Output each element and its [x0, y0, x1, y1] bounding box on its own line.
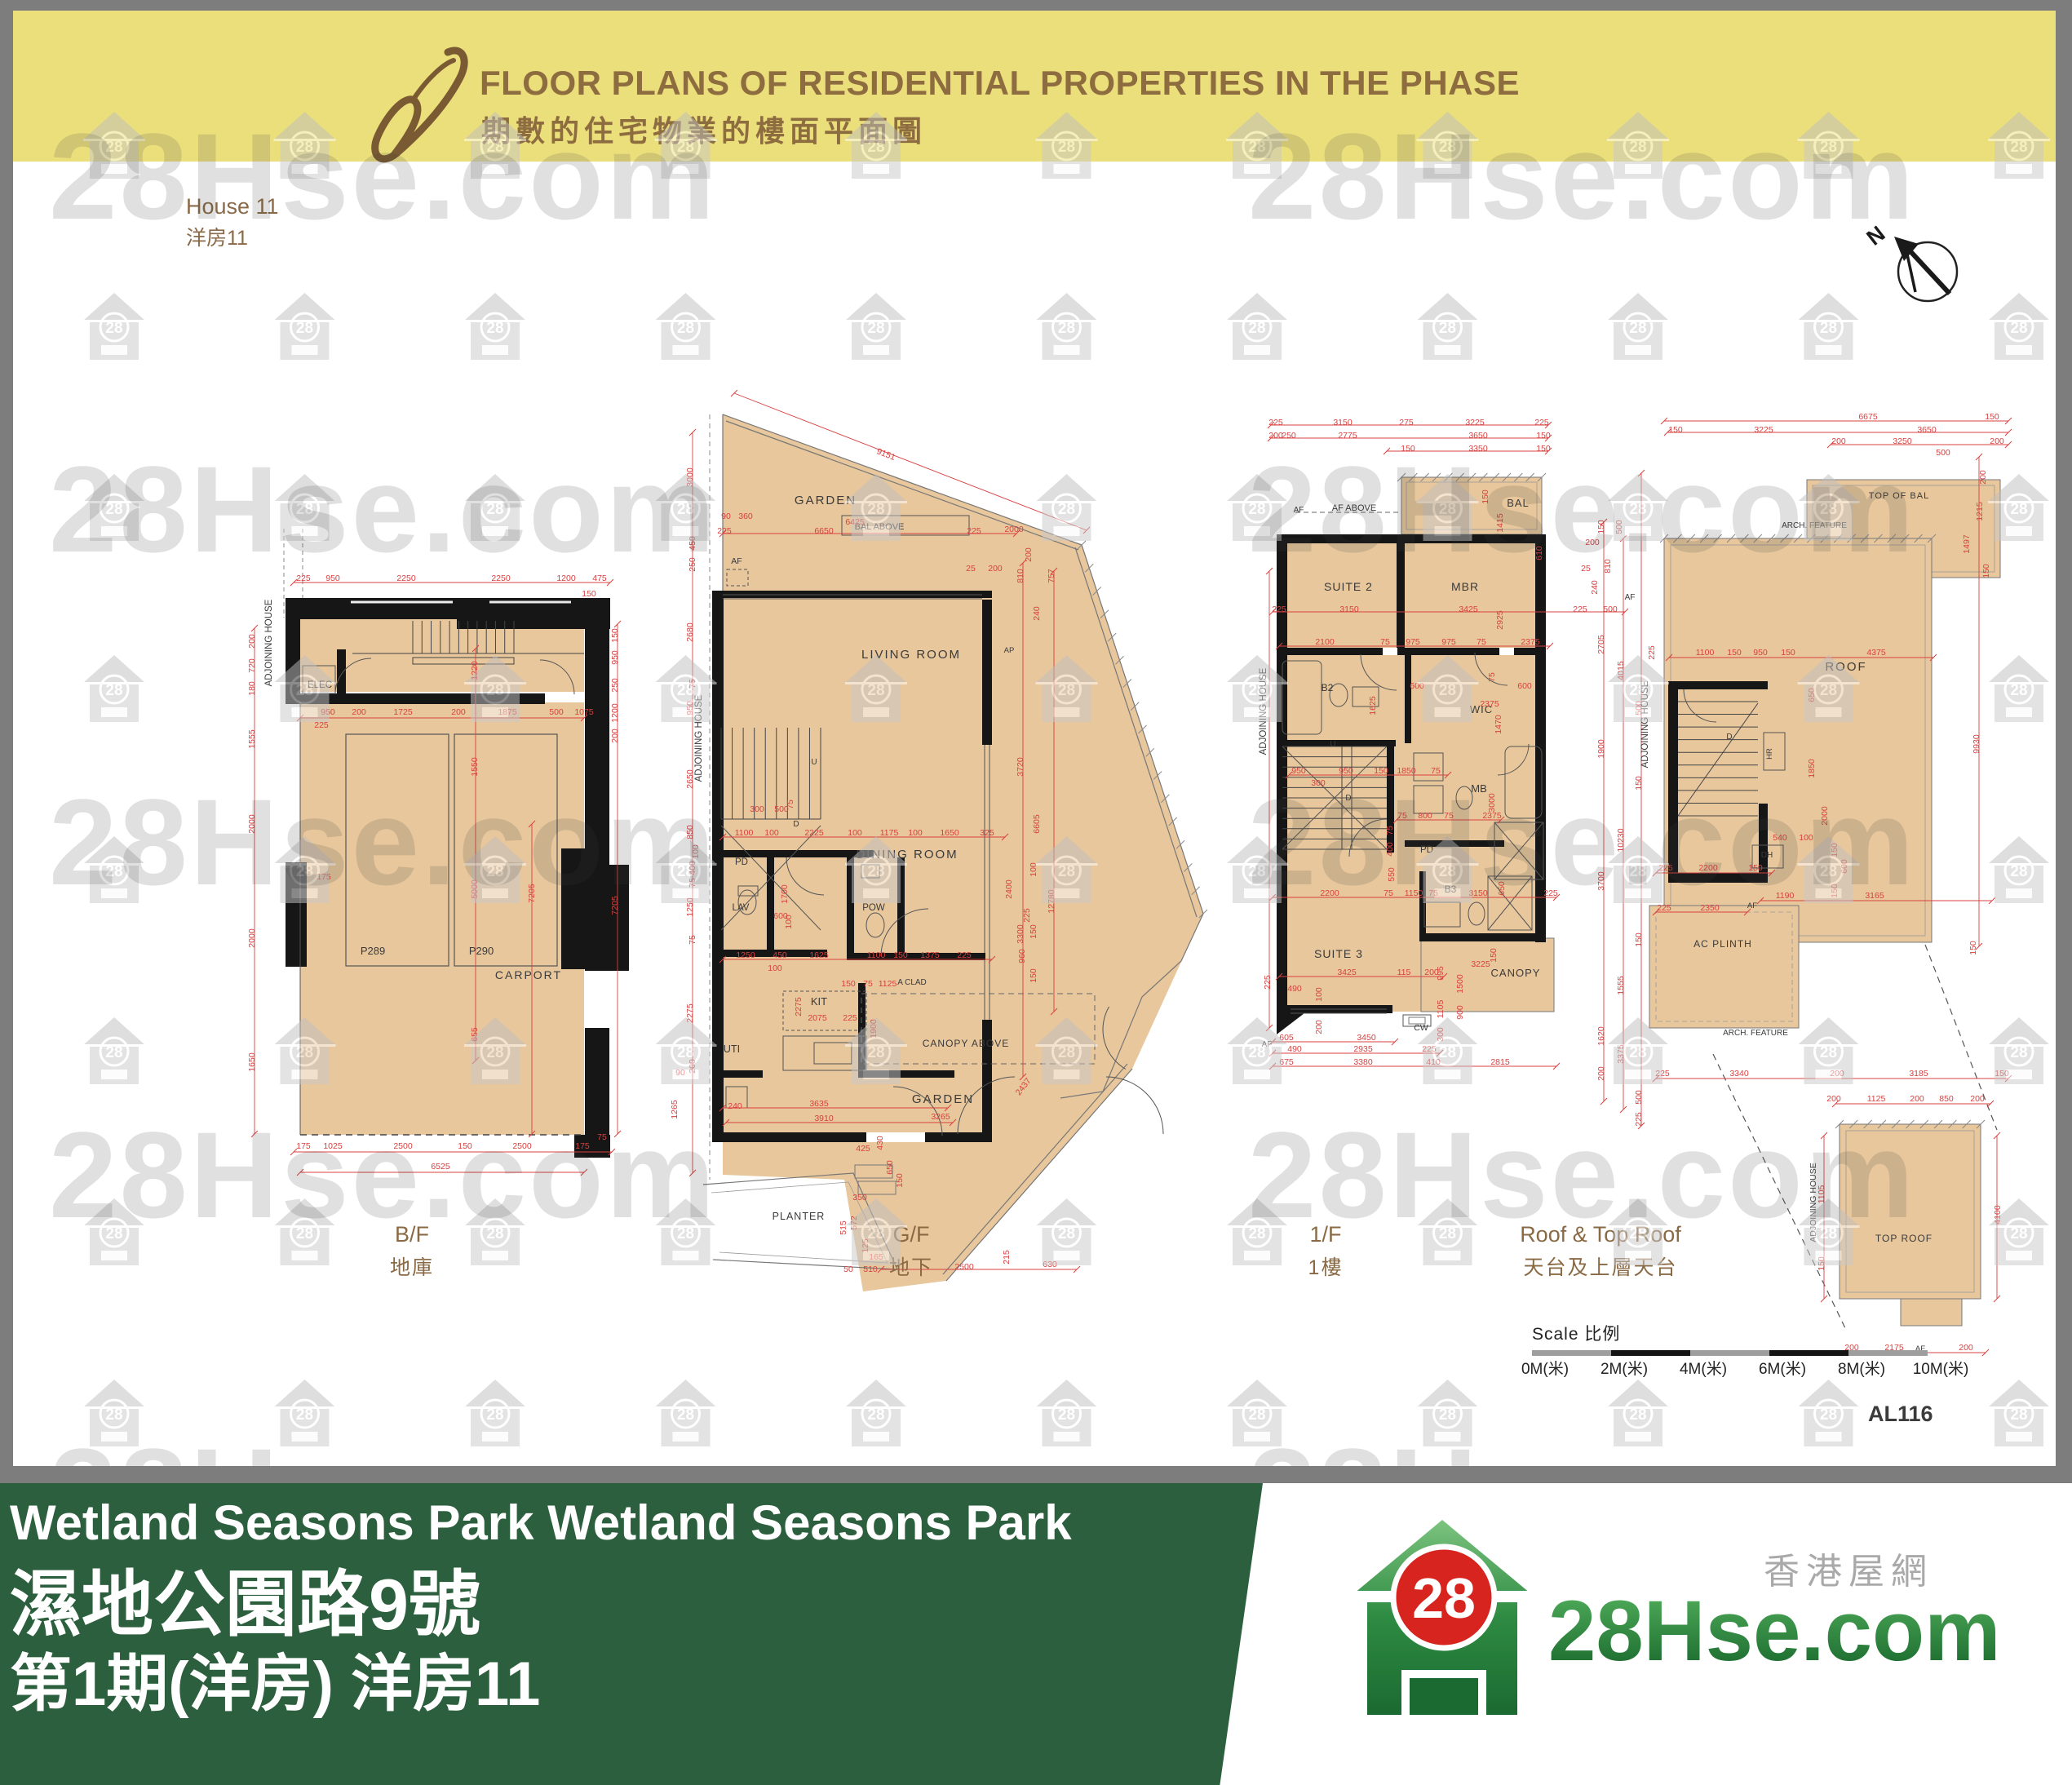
- svg-text:200: 200: [1990, 436, 2004, 446]
- svg-text:75: 75: [1380, 637, 1390, 647]
- svg-text:ARCH. FEATURE: ARCH. FEATURE: [1723, 1029, 1788, 1038]
- svg-text:6650: 6650: [814, 526, 834, 536]
- svg-text:AF: AF: [1625, 593, 1636, 602]
- svg-text:SUITE 2: SUITE 2: [1324, 580, 1373, 593]
- svg-text:1620: 1620: [1596, 1026, 1606, 1046]
- svg-text:225: 225: [843, 1013, 857, 1023]
- svg-text:4100: 4100: [1993, 1205, 2003, 1225]
- svg-text:AF: AF: [1262, 1040, 1273, 1049]
- svg-text:225: 225: [1658, 863, 1673, 873]
- svg-text:200: 200: [1910, 1094, 1924, 1104]
- svg-text:3425: 3425: [1459, 605, 1478, 614]
- svg-text:675: 675: [1279, 1057, 1294, 1067]
- svg-text:1650: 1650: [940, 828, 959, 838]
- svg-text:CANOPY ABOVE: CANOPY ABOVE: [923, 1038, 1009, 1049]
- svg-text:150: 150: [1634, 932, 1644, 947]
- svg-text:490: 490: [1287, 984, 1302, 994]
- svg-text:12780: 12780: [1047, 889, 1056, 913]
- svg-text:2650: 2650: [685, 769, 695, 789]
- svg-text:1100: 1100: [1696, 648, 1715, 658]
- svg-text:2000: 2000: [1004, 525, 1024, 534]
- svg-text:75: 75: [688, 679, 697, 689]
- svg-text:1725: 1725: [393, 707, 413, 717]
- svg-text:225: 225: [1534, 418, 1549, 427]
- svg-text:150: 150: [893, 950, 908, 960]
- svg-text:3650: 3650: [1917, 425, 1937, 435]
- estate-name-en: Wetland Seasons Park Wetland Seasons Par…: [10, 1495, 1072, 1551]
- floor-label-roof: Roof & Top Roof: [1429, 1222, 1772, 1247]
- svg-text:540: 540: [1773, 833, 1787, 843]
- svg-text:10M(米): 10M(米): [1913, 1360, 1969, 1378]
- svg-text:100: 100: [908, 828, 923, 838]
- svg-text:2225: 2225: [804, 828, 824, 838]
- svg-text:200: 200: [1596, 1066, 1606, 1081]
- svg-text:B2: B2: [1322, 682, 1334, 693]
- sheet-number: AL116: [1868, 1402, 1933, 1427]
- page-border-top: [0, 0, 2072, 11]
- svg-text:3340: 3340: [1729, 1069, 1749, 1079]
- svg-text:5000: 5000: [470, 879, 480, 899]
- svg-text:100: 100: [768, 963, 782, 973]
- svg-text:650: 650: [885, 1160, 895, 1175]
- svg-text:75: 75: [1385, 826, 1395, 835]
- svg-text:100: 100: [1029, 862, 1038, 877]
- scale-bar: Scale 比例0M(米)2M(米)4M(米)6M(米)8M(米)10M(米): [1521, 1325, 1968, 1378]
- svg-text:175: 175: [575, 1141, 590, 1151]
- svg-text:1850: 1850: [1807, 759, 1817, 778]
- svg-text:AF: AF: [1747, 901, 1757, 910]
- svg-text:200: 200: [451, 707, 466, 717]
- svg-text:LAV: LAV: [733, 903, 750, 913]
- svg-text:500: 500: [1603, 605, 1618, 614]
- svg-text:200: 200: [688, 1059, 697, 1074]
- svg-text:1075: 1075: [574, 707, 594, 717]
- svg-text:450: 450: [773, 950, 787, 960]
- svg-text:D: D: [793, 820, 799, 829]
- svg-text:300: 300: [1436, 1027, 1446, 1042]
- svg-text:90: 90: [675, 1068, 685, 1078]
- page-border-right: [2056, 0, 2072, 1466]
- svg-text:1700: 1700: [780, 884, 790, 904]
- svg-text:2400: 2400: [1004, 879, 1014, 899]
- svg-text:SUITE 3: SUITE 3: [1314, 947, 1363, 960]
- svg-text:3150: 3150: [1333, 418, 1353, 427]
- floor-label-bf: B/F: [241, 1222, 583, 1247]
- svg-text:950: 950: [325, 574, 340, 583]
- svg-text:2500: 2500: [393, 1141, 413, 1151]
- svg-text:N: N: [1862, 221, 1890, 250]
- svg-text:150: 150: [1668, 425, 1683, 435]
- svg-text:AF: AF: [731, 556, 742, 566]
- svg-text:425: 425: [856, 1144, 870, 1154]
- svg-text:200: 200: [1585, 538, 1600, 547]
- svg-text:150: 150: [1995, 1069, 2009, 1079]
- brand-text: 28Hse.com: [1548, 1583, 2000, 1679]
- svg-text:200: 200: [1830, 1069, 1844, 1079]
- page: FLOOR PLANS OF RESIDENTIAL PROPERTIES IN…: [0, 0, 2072, 1785]
- svg-text:UTI: UTI: [724, 1043, 740, 1055]
- svg-text:3225: 3225: [1754, 425, 1773, 435]
- svg-text:900: 900: [1455, 1005, 1465, 1020]
- svg-text:950: 950: [1291, 766, 1306, 776]
- svg-text:75: 75: [1487, 672, 1497, 682]
- svg-text:1875: 1875: [498, 707, 517, 717]
- svg-text:1025: 1025: [323, 1141, 343, 1151]
- svg-text:2000: 2000: [1820, 806, 1830, 826]
- svg-text:150: 150: [1489, 948, 1499, 963]
- svg-text:1850: 1850: [1397, 766, 1416, 776]
- svg-text:100: 100: [1314, 987, 1324, 1002]
- svg-text:950: 950: [610, 650, 620, 665]
- svg-text:240: 240: [728, 1101, 742, 1111]
- svg-text:7205: 7205: [610, 896, 620, 915]
- svg-text:240: 240: [1032, 606, 1042, 621]
- svg-text:3720: 3720: [1016, 757, 1025, 777]
- svg-text:2775: 2775: [1338, 431, 1357, 441]
- svg-text:200: 200: [1978, 470, 1988, 485]
- svg-text:950: 950: [1339, 766, 1353, 776]
- svg-text:350: 350: [852, 1193, 867, 1203]
- svg-text:1100: 1100: [735, 828, 754, 838]
- svg-text:GARDEN: GARDEN: [912, 1092, 974, 1106]
- svg-text:1105: 1105: [1817, 1185, 1826, 1204]
- svg-text:150: 150: [1029, 968, 1038, 983]
- svg-text:225: 225: [1422, 1044, 1437, 1054]
- svg-text:300: 300: [750, 804, 764, 814]
- floor-label-gf: G/F: [740, 1222, 1082, 1247]
- plan-bf: ADJOINING HOUSEELECP289P290CARPORT225950…: [247, 529, 629, 1176]
- svg-text:1190: 1190: [1776, 891, 1795, 901]
- svg-text:9930: 9930: [1972, 734, 1981, 754]
- svg-text:950: 950: [321, 707, 335, 717]
- svg-text:ADJOINING HOUSE: ADJOINING HOUSE: [1640, 680, 1650, 768]
- logo-zh-text: 香港屋網: [1764, 1542, 1933, 1594]
- svg-text:600: 600: [1840, 859, 1849, 874]
- svg-text:150: 150: [1830, 884, 1840, 898]
- svg-text:LIVING ROOM: LIVING ROOM: [861, 648, 961, 662]
- svg-text:3350: 3350: [1468, 444, 1488, 454]
- svg-text:2375: 2375: [1521, 637, 1540, 647]
- floor-label-bf-zh: 地庫: [241, 1251, 583, 1281]
- svg-text:400: 400: [1385, 842, 1395, 857]
- svg-text:A CLAD: A CLAD: [897, 978, 927, 987]
- svg-text:CW: CW: [1414, 1023, 1428, 1033]
- svg-text:75: 75: [786, 799, 795, 809]
- svg-text:150: 150: [610, 628, 620, 643]
- svg-text:500: 500: [1634, 1090, 1644, 1105]
- svg-text:HR: HR: [1765, 748, 1774, 760]
- svg-text:D: D: [1726, 733, 1732, 742]
- svg-text:225: 225: [1268, 418, 1283, 427]
- svg-text:2500: 2500: [512, 1141, 532, 1151]
- svg-text:175: 175: [296, 1141, 311, 1151]
- svg-text:2275: 2275: [685, 1003, 695, 1023]
- svg-text:1250: 1250: [685, 897, 695, 917]
- svg-text:410: 410: [1426, 1057, 1441, 1067]
- svg-text:100: 100: [764, 828, 779, 838]
- svg-text:500: 500: [549, 707, 564, 717]
- svg-text:600: 600: [1517, 681, 1532, 691]
- svg-text:1150: 1150: [1405, 888, 1423, 898]
- svg-text:2M(米): 2M(米): [1600, 1360, 1648, 1378]
- svg-text:2000: 2000: [247, 928, 257, 948]
- svg-text:POW: POW: [862, 903, 885, 913]
- svg-text:225: 225: [717, 526, 732, 536]
- svg-text:360: 360: [738, 512, 753, 521]
- svg-text:3250: 3250: [1893, 436, 1912, 446]
- svg-text:180: 180: [247, 681, 257, 696]
- svg-text:600: 600: [773, 911, 788, 921]
- svg-text:ARCH. FEATURE: ARCH. FEATURE: [1782, 521, 1847, 530]
- svg-text:3150: 3150: [1339, 605, 1359, 614]
- svg-text:D: D: [1345, 794, 1351, 803]
- svg-text:1415: 1415: [1495, 513, 1505, 533]
- svg-text:1625: 1625: [809, 950, 829, 960]
- svg-text:150: 150: [1634, 776, 1644, 791]
- svg-text:1125: 1125: [879, 979, 897, 989]
- svg-text:75: 75: [1444, 811, 1454, 821]
- svg-text:1200: 1200: [556, 574, 576, 583]
- svg-text:6675: 6675: [1858, 412, 1878, 422]
- svg-text:6425: 6425: [845, 517, 865, 527]
- svg-text:490: 490: [1287, 1044, 1302, 1054]
- svg-text:0M(米): 0M(米): [1521, 1360, 1569, 1378]
- svg-text:1900: 1900: [1596, 739, 1606, 759]
- svg-text:6605: 6605: [1032, 814, 1042, 834]
- svg-text:225: 225: [1543, 888, 1558, 898]
- svg-text:300: 300: [1311, 778, 1326, 788]
- svg-text:200: 200: [1826, 1094, 1841, 1104]
- svg-text:KIT: KIT: [811, 995, 827, 1008]
- svg-text:GARDEN: GARDEN: [795, 494, 857, 507]
- svg-text:7205: 7205: [527, 884, 537, 903]
- svg-text:DH: DH: [1761, 851, 1773, 860]
- svg-text:B3: B3: [1445, 884, 1457, 895]
- svg-text:DINING ROOM: DINING ROOM: [856, 848, 958, 861]
- svg-text:175: 175: [317, 872, 331, 882]
- svg-text:ADJOINING HOUSE: ADJOINING HOUSE: [694, 694, 704, 782]
- svg-text:3300: 3300: [1016, 924, 1025, 944]
- svg-text:6525: 6525: [431, 1162, 450, 1172]
- logo-badge: 28: [1412, 1566, 1476, 1630]
- plan-gf: ADJOINING HOUSEGARDENBAL ABOVEAFLIVING R…: [670, 390, 1207, 1291]
- svg-text:200: 200: [1959, 1343, 1973, 1353]
- svg-text:1470: 1470: [1494, 715, 1503, 734]
- svg-text:250: 250: [688, 557, 697, 572]
- svg-text:6M(米): 6M(米): [1759, 1360, 1806, 1378]
- svg-text:TOP ROOF: TOP ROOF: [1875, 1233, 1933, 1244]
- svg-text:3635: 3635: [809, 1099, 829, 1109]
- svg-text:U: U: [1330, 740, 1335, 749]
- svg-text:150: 150: [458, 1141, 472, 1151]
- svg-text:225: 225: [296, 574, 311, 583]
- svg-text:240: 240: [1590, 580, 1600, 595]
- svg-text:225: 225: [1272, 605, 1286, 614]
- svg-text:3185: 3185: [1909, 1069, 1928, 1079]
- svg-text:325: 325: [980, 828, 994, 838]
- svg-text:1175: 1175: [880, 828, 899, 838]
- svg-text:975: 975: [1441, 637, 1456, 647]
- svg-text:75: 75: [1477, 637, 1486, 647]
- svg-text:4M(米): 4M(米): [1680, 1360, 1727, 1378]
- svg-text:3380: 3380: [1353, 1057, 1373, 1067]
- svg-text:200: 200: [247, 634, 257, 649]
- svg-text:10230: 10230: [1616, 828, 1626, 852]
- svg-text:2705: 2705: [1596, 635, 1606, 654]
- svg-text:CANOPY: CANOPY: [1491, 967, 1541, 979]
- svg-text:3700: 3700: [1596, 871, 1606, 891]
- svg-text:225: 225: [1263, 975, 1273, 990]
- svg-text:2350: 2350: [1700, 903, 1720, 913]
- svg-text:150: 150: [1536, 444, 1551, 454]
- svg-text:25: 25: [1581, 564, 1591, 574]
- svg-text:1550: 1550: [470, 757, 480, 777]
- svg-text:ADJOINING HOUSE: ADJOINING HOUSE: [1259, 667, 1268, 755]
- svg-text:AF: AF: [1294, 506, 1304, 515]
- svg-text:225: 225: [314, 720, 329, 730]
- svg-text:150: 150: [895, 1173, 905, 1188]
- svg-text:200: 200: [1424, 968, 1439, 977]
- svg-text:3225: 3225: [1465, 418, 1485, 427]
- svg-text:275: 275: [1399, 418, 1414, 427]
- svg-text:ROOF: ROOF: [1825, 660, 1866, 674]
- svg-text:960: 960: [1017, 949, 1027, 963]
- svg-text:500: 500: [1936, 448, 1950, 458]
- svg-text:150: 150: [1968, 941, 1978, 955]
- svg-text:3000: 3000: [1487, 793, 1497, 813]
- svg-text:150: 150: [1830, 843, 1840, 857]
- svg-text:U: U: [811, 758, 817, 767]
- svg-text:975: 975: [1406, 637, 1420, 647]
- svg-text:800: 800: [1418, 811, 1432, 821]
- svg-text:150: 150: [1727, 648, 1742, 658]
- svg-text:225: 225: [1634, 1112, 1644, 1127]
- svg-text:3225: 3225: [1471, 959, 1490, 969]
- svg-text:1220: 1220: [470, 661, 480, 680]
- svg-text:200: 200: [610, 729, 620, 743]
- svg-text:475: 475: [592, 574, 607, 583]
- svg-text:100: 100: [691, 844, 701, 859]
- svg-text:500: 500: [1634, 701, 1644, 715]
- svg-text:950: 950: [1753, 648, 1768, 658]
- svg-text:75: 75: [688, 935, 697, 945]
- svg-text:3425: 3425: [1337, 968, 1357, 977]
- svg-text:PD: PD: [735, 857, 748, 867]
- svg-text:2815: 2815: [1490, 1057, 1510, 1067]
- svg-text:AP: AP: [1004, 646, 1015, 655]
- plan-ff: ADJOINING HOUSEAFAF ABOVEBALSUITE 2MBRB2…: [1259, 418, 1650, 1129]
- svg-text:655: 655: [470, 1027, 480, 1042]
- svg-text:CARPORT: CARPORT: [495, 968, 562, 981]
- svg-text:200: 200: [1970, 1094, 1985, 1104]
- plan-rf: TOP OF BALARCH. FEATUREROOFDHRDHAFAC PLI…: [1647, 412, 2012, 1356]
- svg-text:150: 150: [1029, 924, 1038, 939]
- svg-text:100: 100: [848, 828, 862, 838]
- svg-text:3450: 3450: [1357, 1033, 1376, 1043]
- svg-text:2000: 2000: [247, 814, 257, 834]
- svg-text:250: 250: [1282, 431, 1296, 441]
- svg-text:1625: 1625: [1368, 696, 1378, 715]
- svg-text:150: 150: [1596, 520, 1606, 534]
- svg-text:150: 150: [1985, 412, 1999, 422]
- svg-text:75: 75: [863, 979, 873, 989]
- svg-text:200: 200: [352, 707, 366, 717]
- svg-text:2200: 2200: [1698, 863, 1718, 873]
- svg-text:75: 75: [1384, 888, 1393, 898]
- svg-text:P289: P289: [361, 945, 385, 957]
- svg-text:150: 150: [582, 589, 596, 599]
- svg-text:1100: 1100: [867, 950, 886, 960]
- svg-text:100: 100: [1799, 833, 1813, 843]
- svg-text:150: 150: [1981, 564, 1991, 578]
- svg-text:ADJOINING HOUSE: ADJOINING HOUSE: [264, 599, 274, 686]
- phase-unit-zh: 第1期(洋房) 洋房11: [10, 1633, 540, 1723]
- svg-text:600: 600: [1410, 681, 1424, 691]
- svg-text:1375: 1375: [920, 950, 940, 960]
- svg-text:150: 150: [841, 979, 856, 989]
- svg-text:950: 950: [685, 701, 695, 715]
- page-border-left: [0, 0, 13, 1466]
- svg-text:BAL: BAL: [1507, 497, 1530, 509]
- svg-text:150: 150: [1536, 431, 1551, 441]
- svg-text:2680: 2680: [685, 622, 695, 642]
- svg-text:225: 225: [957, 950, 972, 960]
- svg-text:720: 720: [247, 658, 257, 673]
- svg-text:1497: 1497: [1962, 534, 1972, 554]
- svg-text:3000: 3000: [685, 467, 695, 487]
- svg-text:400: 400: [688, 861, 697, 875]
- svg-text:2375: 2375: [1480, 699, 1499, 709]
- svg-text:150: 150: [1817, 1256, 1826, 1271]
- svg-text:25: 25: [966, 564, 976, 574]
- svg-text:1555: 1555: [247, 729, 257, 749]
- svg-text:225: 225: [1647, 645, 1657, 660]
- svg-text:90: 90: [721, 512, 731, 521]
- svg-text:Scale 比例: Scale 比例: [1532, 1325, 1620, 1344]
- svg-text:1215: 1215: [1975, 502, 1985, 521]
- svg-text:2925: 2925: [1495, 610, 1505, 630]
- svg-text:1555: 1555: [1616, 976, 1626, 995]
- svg-text:2935: 2935: [1353, 1044, 1373, 1054]
- svg-text:115: 115: [1397, 968, 1411, 977]
- svg-text:225: 225: [967, 526, 981, 536]
- svg-text:200: 200: [1024, 547, 1034, 562]
- svg-text:75: 75: [688, 878, 697, 888]
- svg-text:2375: 2375: [1482, 811, 1502, 821]
- svg-text:3650: 3650: [1468, 431, 1488, 441]
- svg-text:3165: 3165: [1865, 891, 1884, 901]
- svg-text:1105: 1105: [1436, 1000, 1446, 1019]
- svg-text:225: 225: [1657, 903, 1671, 913]
- svg-text:500: 500: [1614, 520, 1624, 534]
- svg-text:810: 810: [1016, 569, 1025, 583]
- svg-text:1900: 1900: [869, 1019, 879, 1039]
- svg-text:9151: 9151: [875, 446, 897, 463]
- svg-text:2200: 2200: [1320, 888, 1339, 898]
- page-border-bottom: [0, 1466, 2072, 1483]
- svg-text:MB: MB: [1471, 782, 1487, 795]
- svg-text:810: 810: [1603, 559, 1613, 574]
- svg-text:MBR: MBR: [1451, 580, 1479, 593]
- svg-text:1500: 1500: [1455, 974, 1465, 994]
- svg-text:150: 150: [1748, 863, 1763, 873]
- svg-text:605: 605: [1279, 1033, 1294, 1043]
- svg-text:8M(米): 8M(米): [1838, 1360, 1885, 1378]
- svg-text:1650: 1650: [247, 1052, 257, 1072]
- svg-text:225: 225: [1655, 1069, 1670, 1079]
- north-compass-icon: N: [1862, 221, 1957, 301]
- svg-text:850: 850: [685, 825, 695, 839]
